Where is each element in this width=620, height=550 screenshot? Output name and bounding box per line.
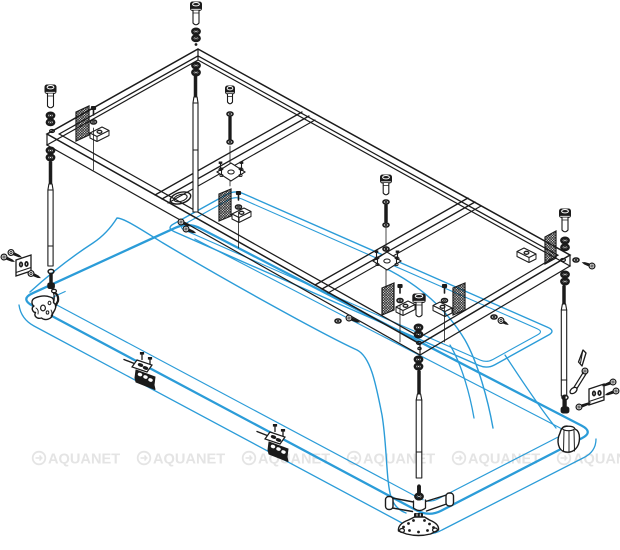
svg-text:AQUANET: AQUANET: [153, 452, 225, 468]
svg-text:AQUANET: AQUANET: [363, 452, 435, 468]
svg-text:AQUANET: AQUANET: [48, 452, 120, 468]
